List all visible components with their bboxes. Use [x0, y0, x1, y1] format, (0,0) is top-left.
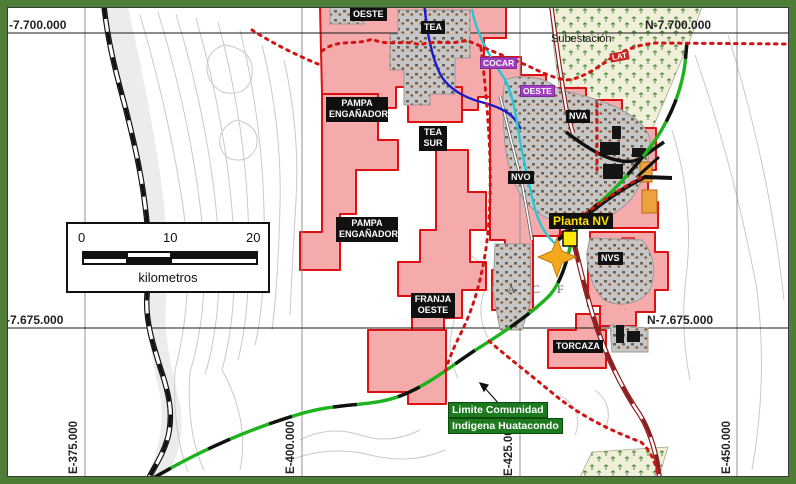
map-figure: -7.700.000 N-7.700.000 -7.675.000 N-7.67…	[0, 0, 796, 484]
coordinate-label-easting-400: E-400.000	[285, 404, 297, 474]
coordinate-label-mid-left: -7.675.000	[6, 313, 63, 327]
concession-label-nva: NVA	[566, 110, 590, 123]
scale-tick-0: 0	[78, 230, 85, 245]
concession-label-tea-sur: TEA SUR	[419, 126, 447, 151]
concession-label-cocar: COCAR	[480, 57, 517, 69]
concession-label-nvs: NVS	[598, 252, 623, 265]
place-label-subestacion: Subestación	[551, 33, 612, 45]
plant-marker-icon	[563, 231, 577, 246]
concession-label-oeste-north: OESTE	[350, 8, 387, 21]
place-label-acf: A C F	[507, 282, 571, 297]
coordinate-label-easting-450: E-450.000	[721, 404, 733, 474]
coordinate-label-easting-375: E-375.000	[68, 404, 80, 474]
scale-unit-label: kilometros	[68, 270, 268, 285]
coordinate-label-top-right: N-7.700.000	[645, 18, 711, 32]
concession-label-tea: TEA	[421, 21, 445, 34]
community-boundary-label-line2: Indigena Huatacondo	[448, 418, 563, 434]
coordinate-label-top-left: -7.700.000	[9, 18, 66, 32]
concession-label-pampa-enganadora-1: PAMPA ENGAÑADORA	[326, 97, 388, 122]
community-boundary-label-line1: Limite Comunidad	[448, 402, 548, 418]
place-label-bellavista: BELLAVISTA	[592, 0, 687, 10]
concession-label-pampa-enganadora-2: PAMPA ENGAÑADORA	[336, 217, 398, 242]
scale-tick-10: 10	[163, 230, 177, 245]
scale-tick-20: 20	[246, 230, 260, 245]
scale-bar: 0 10 20 kilometros	[66, 222, 270, 293]
concession-label-oeste-east: OESTE	[520, 85, 555, 97]
place-label-planta-nv: Planta NV	[549, 213, 613, 229]
concession-label-torcaza: TORCAZA	[553, 340, 603, 353]
concession-label-nvo: NVO	[508, 171, 534, 184]
community-boundary-label: Limite Comunidad Indigena Huatacondo	[448, 402, 563, 434]
concession-label-franja-oeste: FRANJA OESTE	[411, 293, 455, 318]
coordinate-label-mid-right: N-7.675.000	[647, 313, 713, 327]
scale-bar-graphic	[82, 251, 258, 265]
